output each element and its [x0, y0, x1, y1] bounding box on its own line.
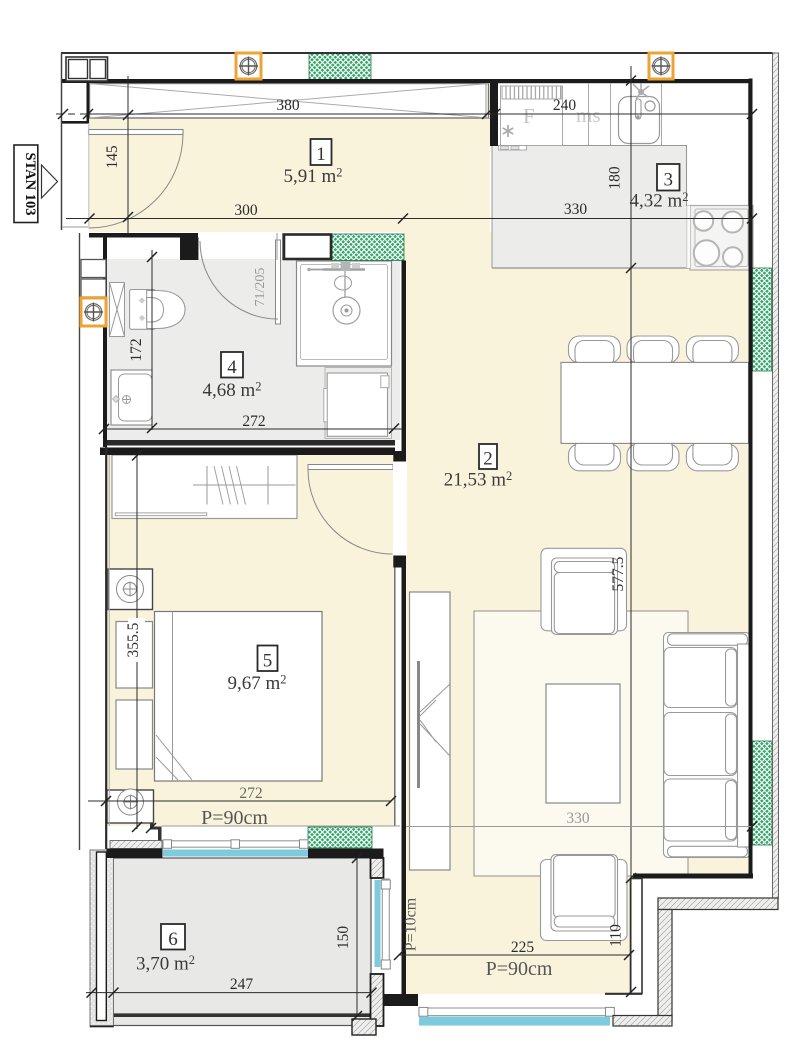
- svg-text:P=90cm: P=90cm: [486, 958, 553, 980]
- svg-text:150: 150: [335, 926, 352, 950]
- svg-text:4,32 m2: 4,32 m2: [629, 190, 688, 212]
- svg-text:240: 240: [553, 97, 577, 114]
- svg-text:247: 247: [230, 976, 254, 993]
- svg-text:STAN 103: STAN 103: [22, 153, 38, 216]
- svg-text:2: 2: [483, 449, 493, 470]
- svg-text:F: F: [523, 104, 535, 128]
- svg-text:3: 3: [663, 170, 673, 191]
- svg-text:355.5: 355.5: [125, 622, 142, 657]
- svg-text:71/205: 71/205: [253, 268, 268, 307]
- svg-text:1: 1: [316, 144, 326, 165]
- svg-text:225: 225: [511, 939, 535, 956]
- svg-text:577.5: 577.5: [610, 556, 627, 591]
- svg-text:4: 4: [227, 357, 237, 378]
- svg-text:5: 5: [263, 651, 273, 672]
- svg-text:330: 330: [566, 810, 590, 827]
- svg-text:272: 272: [242, 413, 265, 430]
- svg-text:9,67 m2: 9,67 m2: [227, 673, 286, 695]
- svg-text:P=90cm: P=90cm: [201, 807, 268, 829]
- svg-text:180: 180: [607, 166, 624, 190]
- svg-text:3,70 m2: 3,70 m2: [136, 953, 195, 975]
- svg-text:5,91 m2: 5,91 m2: [283, 166, 342, 188]
- svg-text:110: 110: [608, 924, 625, 947]
- svg-text:P=10cm: P=10cm: [403, 897, 420, 951]
- svg-text:380: 380: [276, 97, 300, 114]
- svg-text:145: 145: [104, 145, 121, 169]
- svg-text:172: 172: [128, 338, 145, 361]
- svg-text:ms: ms: [576, 103, 601, 127]
- svg-text:21,53 m2: 21,53 m2: [444, 469, 513, 491]
- svg-text:330: 330: [564, 201, 588, 218]
- svg-text:4,68 m2: 4,68 m2: [202, 380, 261, 402]
- svg-text:300: 300: [234, 202, 258, 219]
- svg-text:6: 6: [168, 929, 178, 950]
- svg-text:272: 272: [239, 785, 262, 802]
